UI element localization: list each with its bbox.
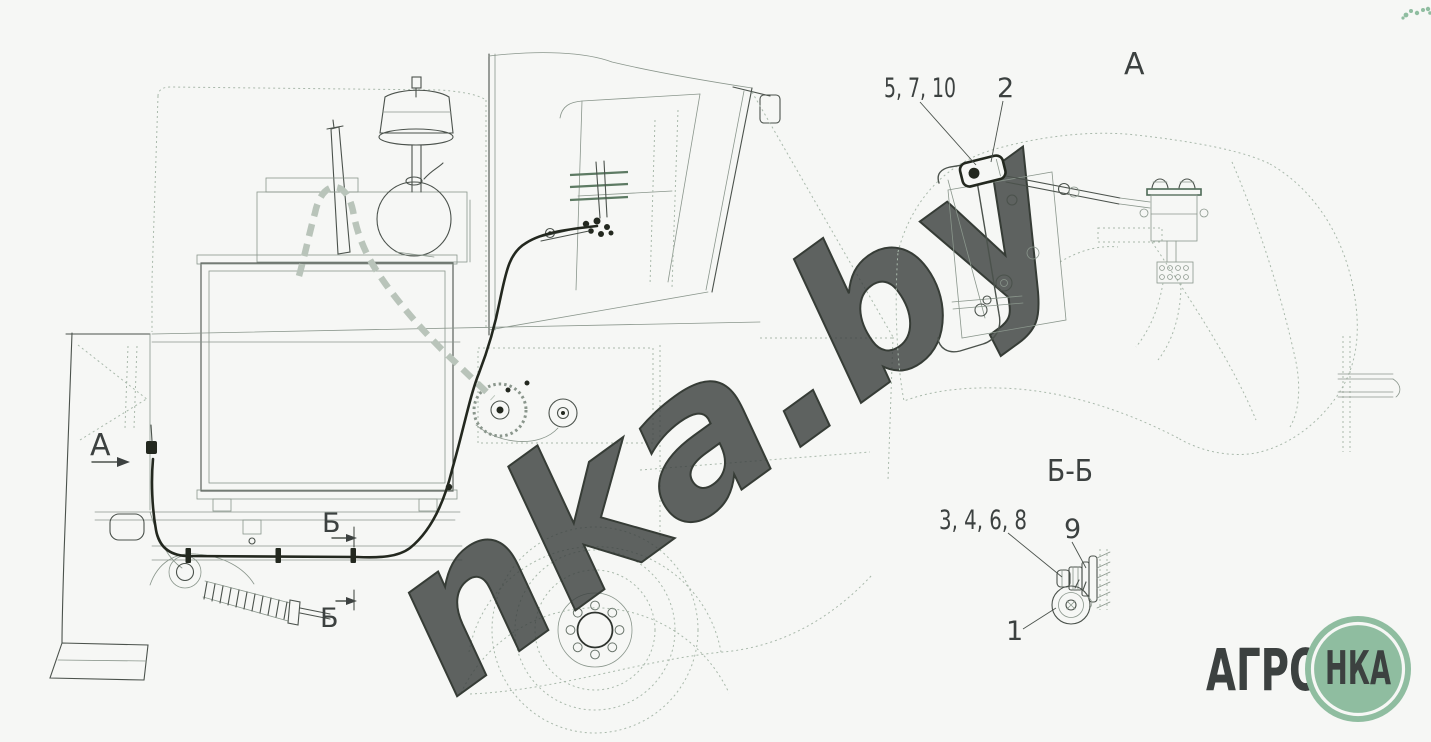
logo-badge-text: НКА (1325, 641, 1391, 695)
drawing-page: А Б Б nka.by А (0, 0, 1431, 742)
harness-connector (146, 441, 157, 454)
section-marker-label: Б (322, 508, 341, 539)
watermark-text: nka.by (341, 84, 1118, 739)
green-specks (1401, 7, 1431, 20)
section-view-bb: Б-Б 3, 4, 6, 8 9 1 (939, 454, 1110, 647)
engine-bay (257, 77, 470, 262)
lamp-recess (110, 514, 144, 540)
callout-1: 1 (1006, 616, 1023, 647)
detail-view-title: А (1124, 47, 1145, 82)
section-bb-callouts: 3, 4, 6, 8 9 1 (939, 505, 1086, 647)
tank (377, 182, 451, 256)
hose-highlighted (299, 187, 493, 398)
callout-3-4-6-8: 3, 4, 6, 8 (939, 505, 1027, 536)
callout-9: 9 (1064, 514, 1081, 545)
cable-clip (186, 548, 192, 563)
section-marker-b-lower: Б (320, 590, 357, 634)
steering-column (540, 161, 628, 241)
callout-5-7-10: 5, 7, 10 (884, 73, 956, 104)
logo-wordmark: АГРО (1206, 636, 1322, 704)
radiator (197, 255, 457, 511)
callout-2: 2 (997, 73, 1014, 104)
section-marker-label: Б (320, 603, 339, 634)
front-frame (50, 333, 182, 680)
view-arrow-label: А (90, 428, 111, 463)
section-view-title: Б-Б (1047, 454, 1093, 489)
cable-clip (276, 548, 282, 563)
brand-logo: АГРО НКА (1206, 616, 1411, 722)
horn-flange (1089, 556, 1097, 602)
mirror (760, 95, 780, 123)
parts-diagram-svg: А Б Б nka.by А (0, 0, 1431, 742)
horn-section-drawing (1052, 549, 1110, 624)
view-a-arrow-marker: А (90, 428, 130, 467)
bolt-head (1057, 570, 1070, 587)
